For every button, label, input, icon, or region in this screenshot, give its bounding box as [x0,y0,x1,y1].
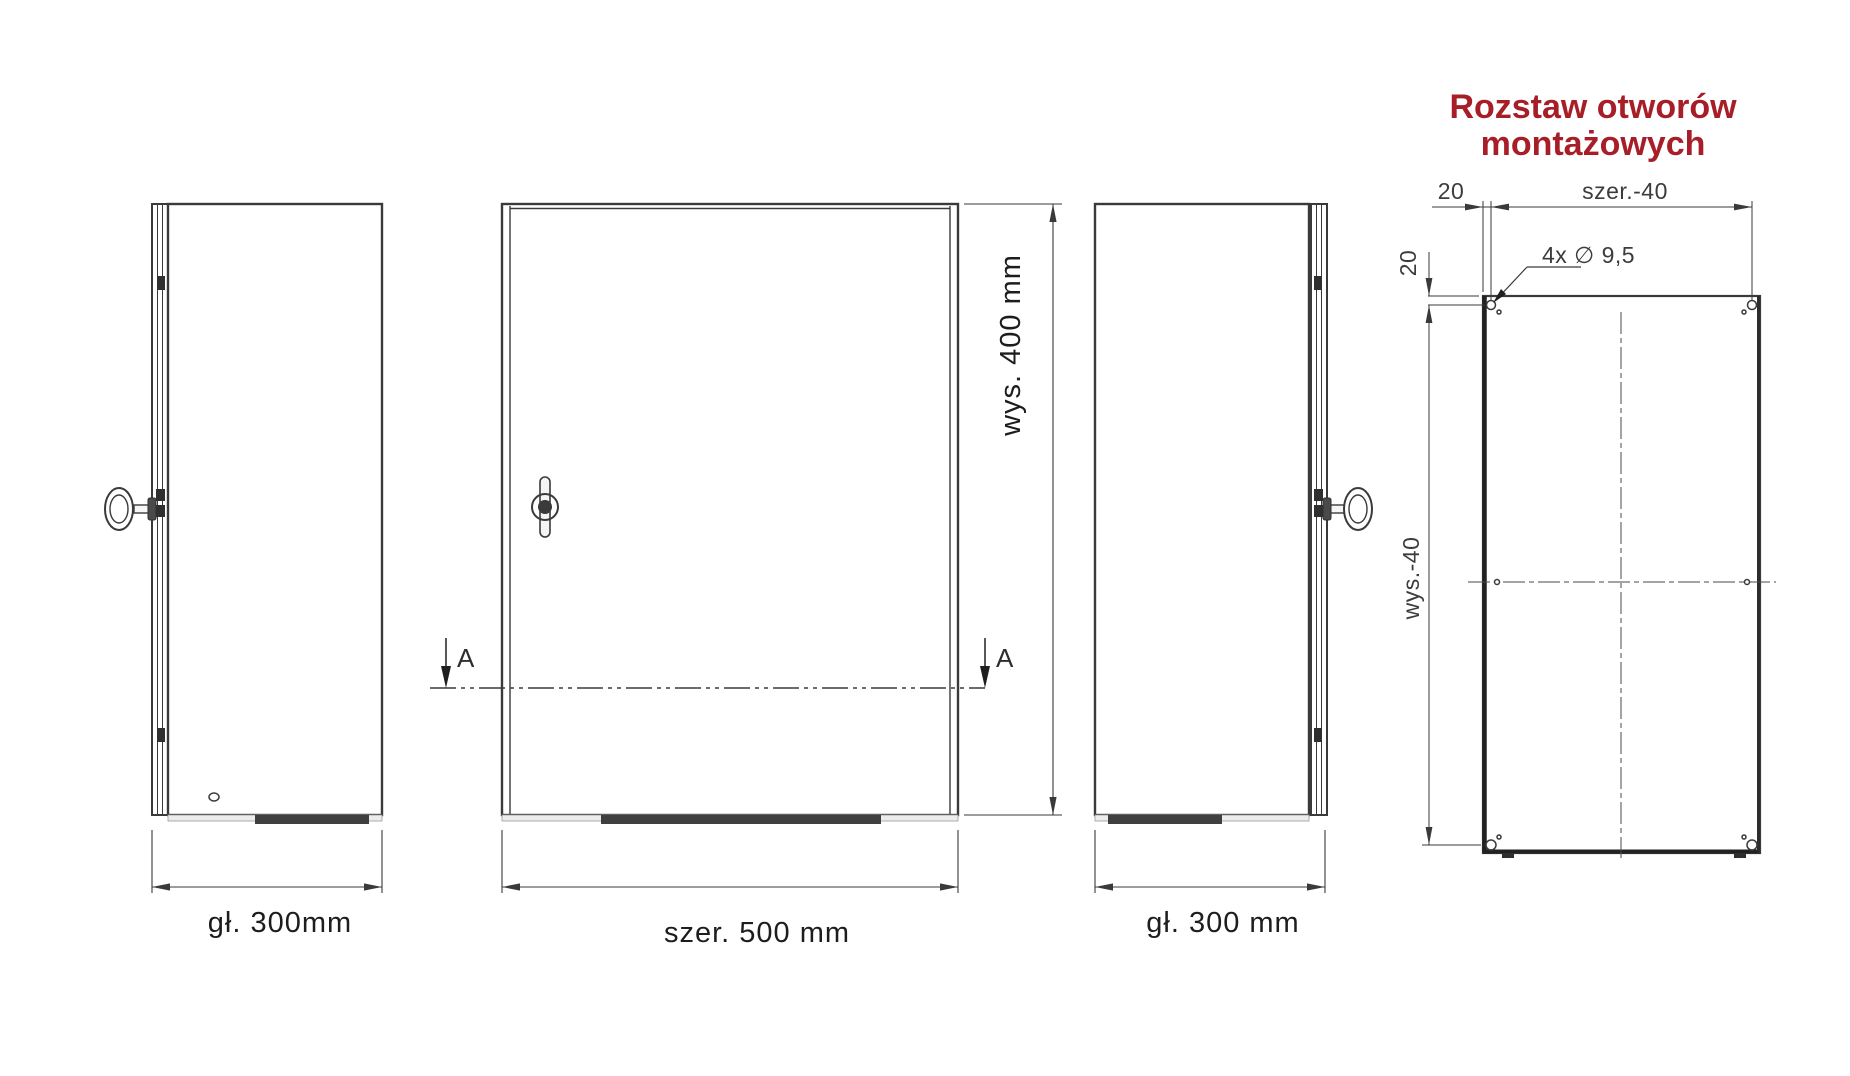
plate-height-label: wys.-40 [1398,537,1424,621]
left-view-base [255,815,369,824]
section-arrow-left [441,666,451,688]
technical-drawing-page: gł. 300mm A A szer. 500 mm [0,0,1850,1076]
left-view-body [168,204,382,815]
front-view-handle [532,477,558,537]
plate-left-offset-label: 20 [1395,250,1421,277]
section-line-a [430,638,990,688]
left-view-depth-dimension [152,830,382,893]
front-width-dimension [502,830,958,893]
right-view-depth-dimension [1095,830,1325,893]
front-height-label: wys. 400 mm [995,254,1027,437]
holes-note-label: 4x ∅ 9,5 [1542,242,1635,268]
left-view-depth-label: gł. 300mm [208,907,352,939]
plate-foot-left [1502,853,1514,858]
section-marker-right: A [996,643,1014,673]
left-side-view [105,204,382,824]
left-view-drain-hole [209,793,219,801]
plate-width-label: szer.-40 [1582,178,1668,204]
plate-top-offset-label: 20 [1438,178,1465,204]
front-view-base [601,815,881,824]
plate-foot-right [1734,853,1746,858]
mounting-plate-drawing [1422,201,1776,858]
front-view-body [502,204,958,815]
section-arrow-right [980,666,990,688]
front-view [502,204,958,824]
left-view-handle [105,488,156,530]
mounting-diagram-title-line2: montażowych [1481,125,1706,163]
right-view-depth-label: gł. 300 mm [1146,907,1299,939]
section-marker-left: A [457,643,475,673]
front-width-label: szer. 500 mm [664,917,850,949]
right-view-handle [1323,488,1372,530]
right-view-base [1108,815,1222,824]
right-view-body [1095,204,1309,815]
mounting-diagram-title-line1: Rozstaw otworów [1449,88,1737,126]
enclosure-drawing: gł. 300mm A A szer. 500 mm [0,0,1850,1076]
right-side-view [1095,204,1372,824]
plate-left-dimensions [1422,252,1485,845]
